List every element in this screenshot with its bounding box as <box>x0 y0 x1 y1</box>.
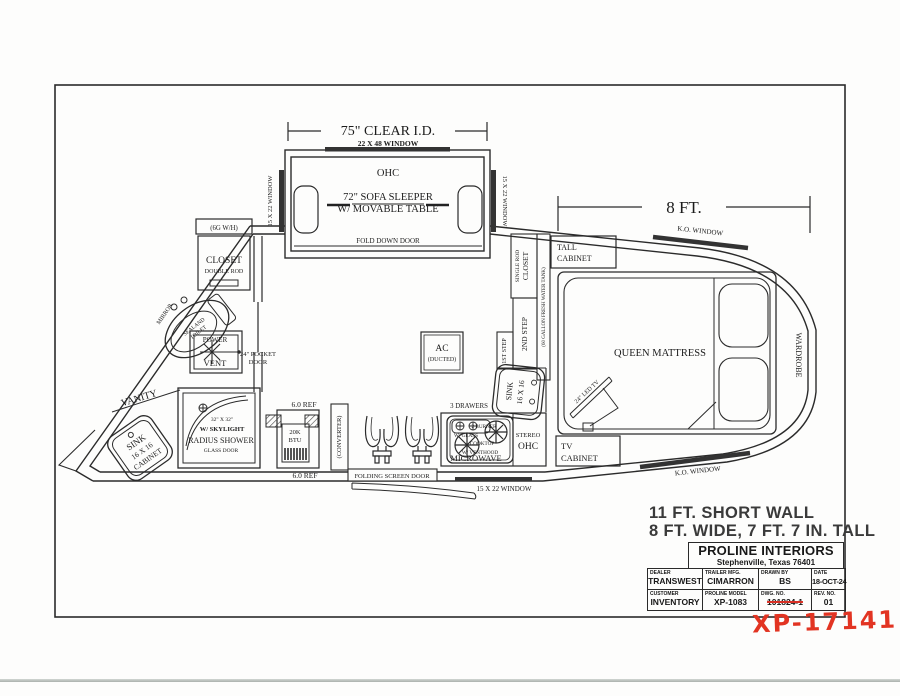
cell-dwg-no: DWG. NO. 101824-1 <box>759 590 812 611</box>
stereo-label: STEREO <box>516 432 541 439</box>
tv-label: 24" LED TV <box>574 379 601 405</box>
caption-line-2: 8 FT. WIDE, 7 FT. 7 IN. TALL <box>649 522 875 540</box>
pocket-door-label-2: DOOR <box>249 359 268 366</box>
sofa-label-2: W/ MOVABLE TABLE <box>337 204 438 215</box>
toilet-bolt-2 <box>181 297 187 303</box>
pocket-door-wall <box>254 236 262 392</box>
cell-customer: CUSTOMER INVENTORY <box>648 590 703 611</box>
bath-sink: SINK 16 X 16 CABINET <box>104 412 176 484</box>
handwritten-model-number: XP-17141 <box>752 605 898 638</box>
date-label: DATE <box>812 569 845 576</box>
dealer-value: TRANSWEST <box>648 576 702 587</box>
shower-label-3: RADIUS SHOWER <box>188 436 254 445</box>
date-value: 18-OCT-24 <box>812 576 845 587</box>
customer-label: CUSTOMER <box>648 590 702 597</box>
furnace-label-2: BTU <box>289 437 302 444</box>
rev-no-value: 01 <box>812 597 845 608</box>
wall-hatch-left <box>266 415 281 427</box>
wall-hatch-right <box>305 415 318 427</box>
bath-area: (6G W/H) CLOSET DOUBLE ROD 24" POCKET DO… <box>104 219 276 484</box>
trailer-mfg-label: TRAILER MFG. <box>703 569 758 576</box>
water-heater-label: (6G W/H) <box>210 225 238 232</box>
dwg-no-label: DWG. NO. <box>759 590 811 597</box>
model-value: XP-1083 <box>703 597 758 608</box>
queen-mattress-label: QUEEN MATTRESS <box>614 348 706 359</box>
vent-label: VENT <box>204 358 227 368</box>
shower-label-1: 32" X 32" <box>211 417 233 423</box>
drawn-by-label: DRAWN BY <box>759 569 811 576</box>
customer-value: INVENTORY <box>648 597 702 608</box>
tall-cabinet-label-1: TALL <box>557 243 577 252</box>
kitchen-faucet-2 <box>529 399 534 404</box>
ac-label-1: AC <box>435 344 448 354</box>
sofa-ohc-label: OHC <box>377 168 399 179</box>
fan-arrow-dot <box>237 350 241 354</box>
window-bar-top <box>325 147 450 152</box>
screen-door-label: FOLDING SCREEN DOOR <box>354 473 430 480</box>
cell-model: PROLINE MODEL XP-1083 <box>703 590 759 611</box>
converter-label: (CONVERTER) <box>336 416 343 459</box>
kitchen-faucet-1 <box>531 380 536 385</box>
window-bar-bottom <box>455 477 532 482</box>
caption-line-1: 11 FT. SHORT WALL <box>649 504 814 522</box>
drawn-by-value: BS <box>759 576 811 587</box>
cell-drawn-by: DRAWN BY BS <box>759 569 812 590</box>
bottom-window-label: 15 X 22 WINDOW <box>477 485 532 493</box>
stereo-ohc-label: OHC <box>518 442 538 452</box>
title-block: PROLINE INTERIORS Stephenville, Texas 76… <box>647 542 845 611</box>
kitchen: 3 DRAWERS SINK 16 X 16 2 BURNER W/ GLASS… <box>441 364 546 466</box>
kitchen-sink-label-1: SINK <box>504 381 515 401</box>
sofa-window-right-label: 15 X 22 WINDOW <box>501 176 508 228</box>
furnace-vents <box>285 448 306 460</box>
cell-dealer: DEALER TRANSWEST <box>648 569 703 590</box>
closet-single-label-2: SINGLE ROD <box>515 250 521 283</box>
ko-window-top-label: K.O. WINDOW <box>677 225 724 238</box>
furnace-label-1: 20K <box>289 429 301 436</box>
dealer-label: DEALER <box>648 569 702 576</box>
model-label: PROLINE MODEL <box>703 590 758 597</box>
sofa-label-1: 72" SOFA SLEEPER <box>343 192 433 203</box>
sofa-window-top-label: 22 X 48 WINDOW <box>358 139 419 148</box>
tall-cabinet-box <box>551 236 616 268</box>
ac-label-2: (DUCTED) <box>428 356 456 363</box>
water-tank-label: (60 GALLON FRESH WATER TANK) <box>542 267 547 347</box>
cooktop: 2 BURNER W/ GLASS COOKTOP W/ VENTHOOD MI… <box>447 416 513 463</box>
power-vent: POWER VENT <box>190 331 242 373</box>
company-name: PROLINE INTERIORS <box>689 543 843 558</box>
pillow-2 <box>719 358 768 421</box>
company-address: Stephenville, Texas 76401 <box>689 558 843 568</box>
title-block-table: DEALER TRANSWEST TRAILER MFG. CIMARRON D… <box>647 568 846 611</box>
power-label: POWER <box>203 336 228 344</box>
ref-top-label: 6.0 REF <box>291 400 316 409</box>
window-bar-left <box>279 170 284 232</box>
drawers-label: 3 DRAWERS <box>450 403 488 410</box>
cell-date: DATE 18-OCT-24 <box>812 569 846 590</box>
kitchen-sink-label-2: 16 X 16 <box>515 380 527 405</box>
pocket-door-label-1: 24" POCKET <box>240 351 276 358</box>
saddle-rack <box>366 416 439 463</box>
wardrobe-label: WARDROBE <box>794 333 803 378</box>
second-step-label: 2ND STEP <box>520 317 529 351</box>
window-bar-right <box>491 170 496 232</box>
pillow-1 <box>719 284 768 347</box>
sofa-window-left-label: 15 X 22 WINDOW <box>267 175 274 227</box>
shower: 32" X 32" W/ SKYLIGHT RADIUS SHOWER GLAS… <box>178 388 260 468</box>
shower-label-4: GLASS DOOR <box>204 448 239 454</box>
closet-sub-label: DOUBLE ROD <box>205 269 244 275</box>
tv-cabinet-label-1: TV <box>561 441 573 451</box>
dim-75-label: 75" CLEAR I.D. <box>341 124 435 139</box>
trailer-mfg-value: CIMARRON <box>703 576 758 587</box>
floorplan-page: 75" CLEAR I.D. 22 X 48 WINDOW 15 X 22 WI… <box>0 0 900 696</box>
shower-label-2: W/ SKYLIGHT <box>200 426 245 433</box>
closet-single-label-1: CLOSET <box>521 251 530 280</box>
sofa-arm-right <box>458 186 482 233</box>
dwg-no-value: 101824-1 <box>759 597 811 608</box>
sofa-arm-left <box>294 186 318 233</box>
title-block-header: PROLINE INTERIORS Stephenville, Texas 76… <box>688 542 844 568</box>
ko-window-bar-top <box>653 237 748 248</box>
rev-no-label: REV. NO. <box>812 590 845 597</box>
cell-trailer-mfg: TRAILER MFG. CIMARRON <box>703 569 759 590</box>
first-step-label: 1ST STEP <box>502 338 508 364</box>
scan-artifact-line <box>0 679 900 682</box>
open-door-leaf <box>352 483 476 499</box>
tall-cabinet-label-2: CABINET <box>557 254 592 263</box>
shower-head-icon <box>199 404 207 412</box>
microwave-label: MICROWAVE <box>450 453 501 463</box>
closet-label: CLOSET <box>206 256 242 266</box>
ref-bottom-label: 6.0 REF <box>292 471 317 480</box>
sofa-slideout: 75" CLEAR I.D. 22 X 48 WINDOW 15 X 22 WI… <box>267 119 508 246</box>
fold-down-door-label: FOLD DOWN DOOR <box>356 237 420 245</box>
closet-rod <box>210 280 238 286</box>
tv-cabinet-label-2: CABINET <box>561 453 599 463</box>
dim-8ft-label: 8 FT. <box>666 198 702 217</box>
